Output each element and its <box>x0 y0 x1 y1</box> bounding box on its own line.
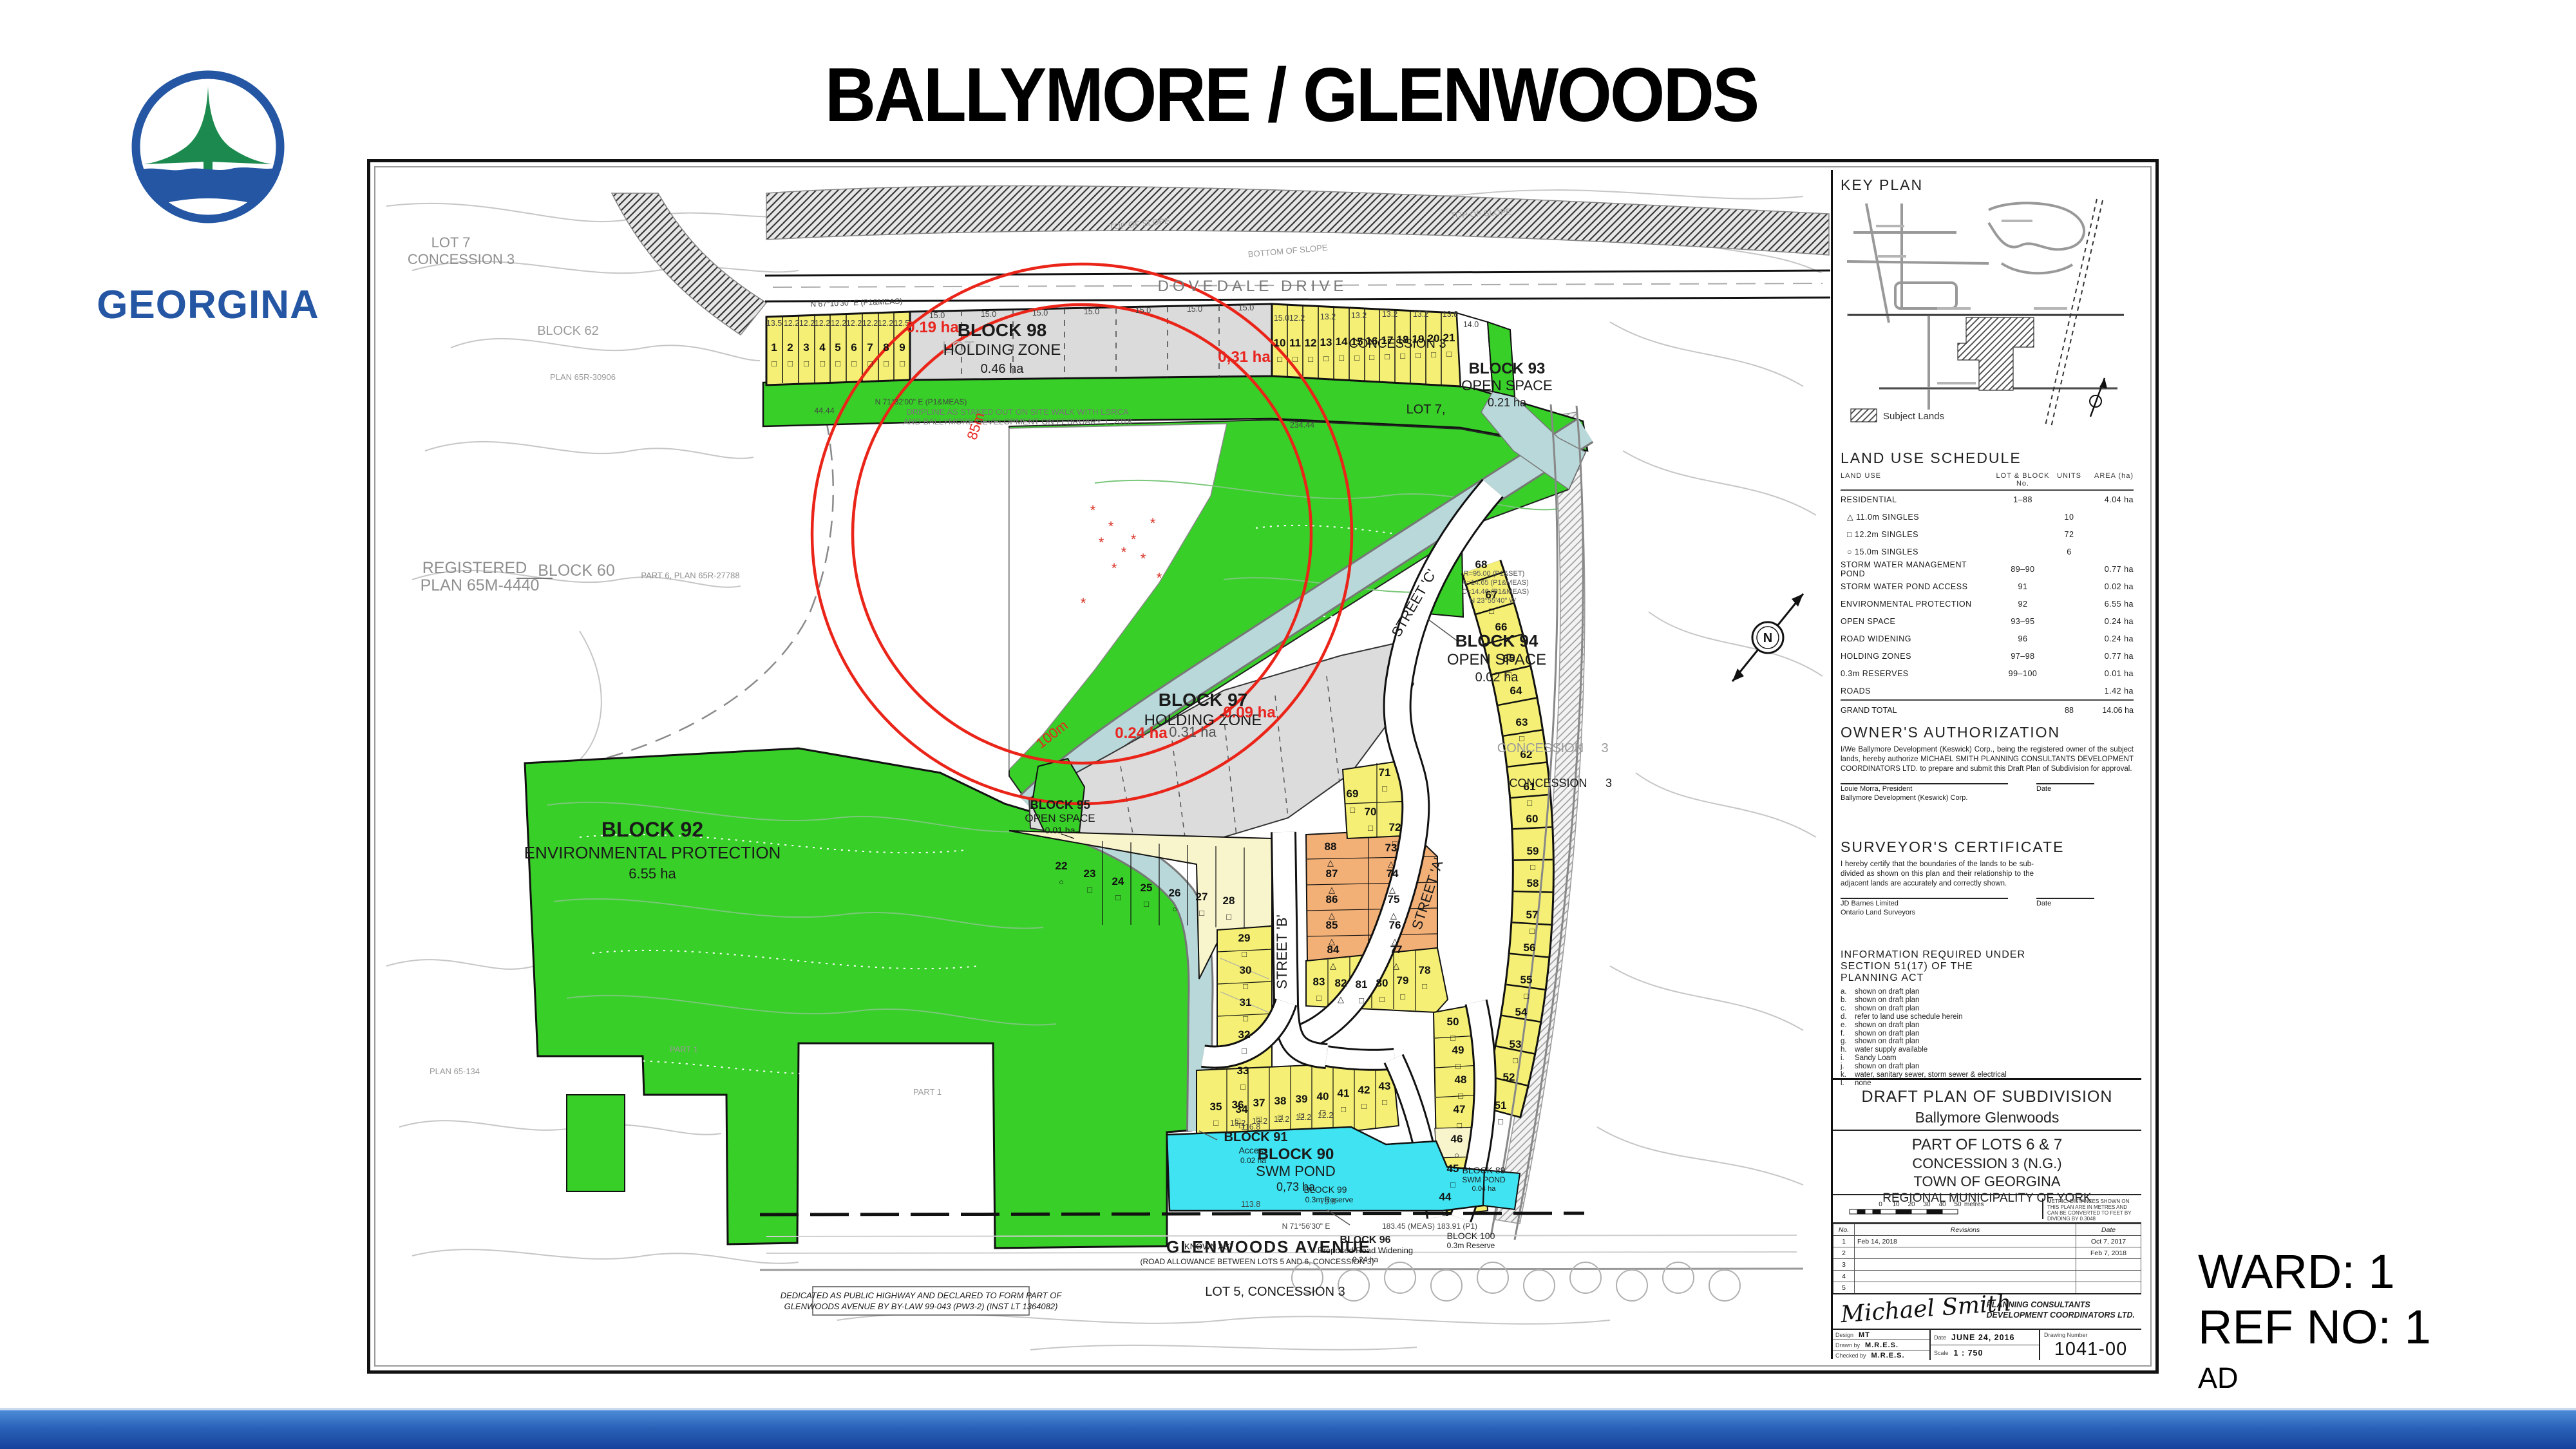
lot-type-marker: □ <box>884 359 889 368</box>
surveyors-signature-row: JD Barnes Limited Ontario Land Surveyors… <box>1841 898 2134 917</box>
lot-number: 80 <box>1376 977 1388 989</box>
lot-type-marker: ○ <box>1172 904 1177 914</box>
lot-type-marker: □ <box>1450 1180 1455 1189</box>
lot-number: 3 <box>803 341 809 354</box>
lot-type-marker: □ <box>1416 350 1421 360</box>
dimension-label: 12.2 <box>878 319 893 328</box>
map-label: 0.04 ha <box>1472 1185 1497 1193</box>
map-label: 0.31 ha <box>1169 724 1217 740</box>
lot-type-marker: □ <box>1422 981 1427 991</box>
map-label: N 71°32'00" E (P1&MEAS) <box>875 397 967 406</box>
svg-text:0: 0 <box>1879 1201 1882 1208</box>
drawing-number: 1041-00 <box>2040 1339 2141 1360</box>
land-use-row: ○ 15.0m SINGLES6 <box>1841 543 2134 560</box>
map-label: 0.09 ha <box>1223 704 1276 721</box>
lot-number: 50 <box>1447 1016 1459 1028</box>
lot-number: 29 <box>1238 932 1251 944</box>
owners-signature-row: Louie Morra, President Ballymore Develop… <box>1841 783 2134 802</box>
dimension-label: 12.2 <box>815 319 830 328</box>
lot-type-marker: □ <box>851 359 857 368</box>
lot-type-marker: □ <box>835 359 840 368</box>
lot-number: 70 <box>1365 806 1377 818</box>
slide: { "page": {"title": "BALLYMORE / GLENWOO… <box>0 0 2576 1449</box>
map-label: HOLDING ZONE <box>943 341 1061 359</box>
svg-text:50: 50 <box>1954 1201 1962 1208</box>
lot-type-marker: □ <box>788 359 793 368</box>
svg-text:20: 20 <box>1908 1201 1915 1208</box>
lot-type-marker: □ <box>1498 1117 1503 1126</box>
lot-number: 56 <box>1524 942 1536 954</box>
lot-type-marker: △ <box>1329 885 1335 895</box>
owners-authorization-section: OWNER'S AUTHORIZATION I/We Ballymore Dev… <box>1833 717 2141 832</box>
firm-name: PLANNING CONSULTANTS DEVELOPMENT COORDIN… <box>1986 1300 2135 1320</box>
land-use-row: 0.3m RESERVES99–1000.01 ha <box>1841 665 2134 682</box>
lot-type-marker: □ <box>1524 991 1529 1001</box>
map-label: PLAN 65M-4440 <box>421 576 540 594</box>
map-label: PART 6, PLAN 65R-27788 <box>641 571 739 580</box>
lot-number: 71 <box>1379 766 1391 779</box>
svg-text:40: 40 <box>1938 1201 1946 1208</box>
map-label: DEDICATED AS PUBLIC HIGHWAY AND DECLARED… <box>781 1291 1063 1300</box>
lot-number: 10 <box>1274 337 1286 349</box>
surveyors-title: SURVEYOR'S CERTIFICATE <box>1841 838 2134 856</box>
lot-number: 48 <box>1455 1074 1467 1086</box>
map-label: 0.3m Reserve <box>1305 1195 1354 1204</box>
lot-number: 64 <box>1510 685 1522 697</box>
dimension-label: 13.8 <box>1443 310 1458 319</box>
map-label: N 71°56'30" E <box>1282 1222 1331 1231</box>
lot-number: 1 <box>771 341 777 354</box>
lot-number: 60 <box>1526 813 1539 825</box>
lot-type-marker: □ <box>1235 1116 1240 1126</box>
svg-text:N: N <box>1763 631 1772 645</box>
lot-type-marker: □ <box>1359 996 1364 1005</box>
lot-type-marker: □ <box>1458 1091 1463 1101</box>
land-use-title: LAND USE SCHEDULE <box>1841 450 2134 467</box>
key-plan-section: KEY PLAN <box>1833 170 2141 443</box>
lot-number: 43 <box>1379 1080 1391 1092</box>
dimension-label: 13.2 <box>1351 311 1367 320</box>
map-label: BLOCK 62 <box>537 324 599 338</box>
block92-fragment <box>567 1095 625 1191</box>
lot-number: 11 <box>1289 337 1301 349</box>
map-label: LOT 7, <box>1406 402 1446 417</box>
lot-type-marker: ○ <box>1059 877 1064 887</box>
footer-annotations: WARD: 1 REF NO: 1 AD <box>2198 1244 2559 1395</box>
lot-type-marker: △ <box>1329 936 1335 946</box>
map-label: SWM POND <box>1256 1163 1335 1179</box>
lot-number: 14 <box>1336 336 1348 348</box>
map-label: PART 1 <box>670 1045 698 1054</box>
key-plan-map: Subject Lands <box>1841 194 2134 433</box>
lot-number: 59 <box>1527 845 1539 857</box>
map-label: ENVIRONMENTAL PROTECTION <box>524 843 781 862</box>
land-use-row: STORM WATER POND ACCESS910.02 ha <box>1841 578 2134 595</box>
svg-text:*: * <box>1081 595 1086 611</box>
surveyors-sig-company: Ontario Land Surveyors <box>1841 909 1915 916</box>
lot-number: 83 <box>1313 976 1325 988</box>
north-arrow-icon: N <box>1732 594 1803 681</box>
lot-number: 81 <box>1356 978 1368 990</box>
lot-type-marker: □ <box>1243 1014 1248 1023</box>
owners-date-label: Date <box>2036 783 2094 802</box>
map-label: OPEN SPACE <box>1447 651 1546 668</box>
lot-number: 26 <box>1169 887 1181 899</box>
owners-title: OWNER'S AUTHORIZATION <box>1841 724 2134 741</box>
lot-number: 27 <box>1196 891 1208 903</box>
footer-blue-bar <box>0 1408 2576 1449</box>
lot-number: 42 <box>1358 1084 1370 1096</box>
map-label: AND BALLYMORE DEVELOPMENT ON FEBRUARY 1,… <box>903 417 1132 426</box>
map-label: OPEN SPACE <box>1461 377 1552 393</box>
lot-number: 35 <box>1210 1101 1222 1113</box>
lot-type-marker: △ <box>1330 961 1336 971</box>
lot-type-marker: □ <box>1400 351 1405 361</box>
key-plan-north-icon <box>2090 378 2107 417</box>
map-label: BLOCK 94 <box>1455 631 1539 650</box>
dimension-label: 12.2 <box>862 319 878 328</box>
lot-number: 58 <box>1527 877 1539 889</box>
lot-type-marker: □ <box>1350 805 1355 815</box>
map-label: PLAN 65-134 <box>430 1066 480 1076</box>
map-label: 0.21 ha <box>1488 396 1527 409</box>
map-label: STREET 'B' <box>1274 914 1290 989</box>
dimension-label: 15.0 <box>1084 307 1099 316</box>
owners-body: I/We Ballymore Development (Keswick) Cor… <box>1841 745 2134 774</box>
map-label: LOT 7 <box>431 234 471 251</box>
lot-type-marker: □ <box>1446 349 1452 359</box>
svg-text:*: * <box>1112 560 1117 576</box>
lot-number: 86 <box>1326 893 1338 905</box>
map-label: 0.02 ha <box>1475 670 1519 685</box>
lot-number: 28 <box>1223 895 1235 907</box>
lot-number: 41 <box>1338 1087 1350 1099</box>
lot-type-marker: □ <box>1226 912 1231 922</box>
lot-type-marker: □ <box>820 359 825 368</box>
subdivision-map: *** *** **** <box>378 170 1831 1359</box>
metric-note: METRIC: DISTANCES SHOWN ON THIS PLAN ARE… <box>2042 1198 2137 1219</box>
plan-location-row: PART OF LOTS 6 & 7 CONCESSION 3 (N.G.) T… <box>1833 1130 2141 1194</box>
map-label: 3 <box>1601 741 1608 755</box>
key-plan-title: KEY PLAN <box>1841 176 2134 194</box>
lot-number: 77 <box>1390 943 1403 956</box>
lot-number: 5 <box>835 341 840 354</box>
svg-text:*: * <box>1141 551 1146 567</box>
land-use-rows: RESIDENTIAL1–884.04 ha△ 11.0m SINGLES10□… <box>1841 491 2134 699</box>
info-item: f.shown on draft plan <box>1841 1030 2134 1038</box>
drawing-number-field: Drawing Number 1041-00 <box>2040 1330 2141 1360</box>
map-label: BLOCK 96 <box>1340 1235 1390 1245</box>
map-label: BLOCK 92 <box>601 818 703 841</box>
lot-type-marker: □ <box>1339 353 1344 363</box>
lot-number: 30 <box>1240 964 1252 976</box>
subject-lands-swatch <box>1851 409 1877 422</box>
lot-number: 6 <box>851 341 857 354</box>
lot-type-marker: □ <box>1385 352 1390 361</box>
initials-label: AD <box>2198 1361 2559 1395</box>
lot-type-marker: □ <box>1115 893 1121 902</box>
lot-type-marker: □ <box>1513 1056 1518 1065</box>
map-label: CONCESSION 3 <box>1349 337 1446 351</box>
surveyors-body: I hereby certify that the boundaries of … <box>1841 860 2034 889</box>
lot-number: 63 <box>1516 716 1528 728</box>
lot-number: 73 <box>1385 842 1397 854</box>
dimension-label: 15.0 <box>1187 305 1202 314</box>
land-use-row: RESIDENTIAL1–884.04 ha <box>1841 491 2134 508</box>
lot-number: 38 <box>1274 1095 1287 1107</box>
lot-number: 25 <box>1141 882 1153 894</box>
lot-type-marker: □ <box>772 359 777 368</box>
map-label: 0,31 ha <box>1218 348 1271 366</box>
map-label: CONCESSION <box>1509 777 1587 790</box>
dimension-label: 44.44 <box>814 406 834 415</box>
lot-number: 31 <box>1240 996 1252 1009</box>
svg-text:*: * <box>1157 570 1162 586</box>
lot-type-marker: △ <box>1327 858 1334 867</box>
dimension-label: 12.2 <box>831 319 846 328</box>
dimension-label: 13.2 <box>1382 310 1397 319</box>
lot-number: 12 <box>1305 337 1317 349</box>
dimension-label: 15.0 <box>1274 314 1289 323</box>
svg-text:*: * <box>1131 531 1137 547</box>
dimension-label: 15.0 <box>1238 303 1254 312</box>
lot-number: 45 <box>1447 1162 1459 1175</box>
lot-type-marker: □ <box>1354 353 1359 363</box>
map-label: 0.24 ha <box>1115 724 1168 742</box>
lot-number: 7 <box>867 341 873 354</box>
lot-type-marker: □ <box>1369 352 1374 362</box>
georgina-logo: GEORGINA <box>97 43 319 300</box>
lot-number: 55 <box>1520 974 1533 986</box>
land-use-row: ENVIRONMENTAL PROTECTION926.55 ha <box>1841 595 2134 612</box>
lot-type-marker: □ <box>1379 994 1385 1004</box>
lot-type-marker: □ <box>804 359 809 368</box>
location-line: PART OF LOTS 6 & 7 <box>1833 1136 2141 1154</box>
lot-number: 23 <box>1084 867 1096 880</box>
ward-label: WARD: 1 <box>2198 1244 2559 1300</box>
map-label: LOT 5, CONCESSION 3 <box>1205 1285 1345 1299</box>
lot-type-marker: □ <box>1382 1097 1387 1107</box>
lot-number: 47 <box>1454 1103 1466 1115</box>
info-item: d.refer to land use schedule herein <box>1841 1013 2134 1021</box>
lot-type-marker: □ <box>1199 908 1204 918</box>
info-item: a.shown on draft plan <box>1841 988 2134 996</box>
map-label: 0.3m Reserve <box>1447 1241 1495 1250</box>
lot-type-marker: □ <box>1316 993 1321 1003</box>
map-label: BLOCK 91 <box>1224 1130 1288 1144</box>
lot-number: 4 <box>819 341 826 354</box>
lot-number: 39 <box>1296 1093 1308 1105</box>
dimension-label: 13.2 <box>1320 312 1336 321</box>
map-label: 6.55 ha <box>629 866 676 882</box>
lot-type-marker: □ <box>1323 354 1329 363</box>
lot-number: 57 <box>1526 909 1539 921</box>
lot-type-marker: □ <box>1529 926 1535 936</box>
map-label: BLOCK 90 <box>1258 1146 1334 1163</box>
lot-number: 22 <box>1056 860 1068 872</box>
svg-text:metres: metres <box>1964 1201 1984 1208</box>
map-label: BLOCK 98 <box>958 320 1046 340</box>
subject-lands-label: Subject Lands <box>1883 411 1944 422</box>
land-use-row: △ 11.0m SINGLES10 <box>1841 508 2134 526</box>
map-label: BLOCK 95 <box>1030 799 1090 812</box>
lot-type-marker: □ <box>1368 823 1373 833</box>
lot-number: 51 <box>1495 1099 1507 1112</box>
map-label: 0.24 ha <box>1352 1255 1378 1264</box>
dimension-label: 113.8 <box>1241 1200 1260 1209</box>
info-required-title: INFORMATION REQUIRED UNDER SECTION 51(17… <box>1841 949 2134 984</box>
lot-number: 32 <box>1238 1028 1251 1041</box>
lot-number: 9 <box>899 341 905 354</box>
lot-number: 72 <box>1389 821 1401 833</box>
lot-number: 33 <box>1237 1065 1249 1077</box>
info-item: j.shown on draft plan <box>1841 1063 2134 1071</box>
map-label: (ROAD ALLOWANCE BETWEEN LOTS 5 AND 6, CO… <box>1141 1257 1374 1266</box>
lot-type-marker: ○ <box>1454 1150 1459 1160</box>
lot-number: 85 <box>1326 919 1338 931</box>
lot-number: 74 <box>1387 867 1399 880</box>
land-use-row: ROAD WIDENING960.24 ha <box>1841 630 2134 647</box>
land-use-row: OPEN SPACE93–950.24 ha <box>1841 612 2134 630</box>
lot-number: 75 <box>1388 893 1400 905</box>
land-use-schedule-section: LAND USE SCHEDULE LAND USELOT & BLOCK No… <box>1833 443 2141 717</box>
svg-text:*: * <box>1121 544 1127 560</box>
lot-type-marker: □ <box>1242 949 1247 959</box>
map-label: BLOCK 99 <box>1304 1184 1347 1195</box>
lot-type-marker: □ <box>1243 981 1248 991</box>
lot-type-marker: □ <box>1277 354 1282 364</box>
lot-type-marker: □ <box>1320 1108 1325 1117</box>
revisions-table: No.RevisionsDate1Feb 14, 2018Oct 7, 2017… <box>1833 1224 2141 1294</box>
lot-type-marker: △ <box>1393 961 1399 971</box>
lot-type-marker: □ <box>1278 1112 1283 1122</box>
lot-number: 24 <box>1112 875 1124 887</box>
lot-type-marker: □ <box>1341 1104 1346 1114</box>
lot-type-marker: □ <box>1450 1033 1455 1043</box>
dimension-label: 15.0 <box>1135 306 1151 315</box>
map-label: CONCESSION <box>1497 741 1584 755</box>
map-label: PLAN 65R-30906 <box>550 372 616 382</box>
lot-number: 36 <box>1232 1099 1244 1111</box>
plan-type: DRAFT PLAN OF SUBDIVISION <box>1833 1088 2141 1106</box>
svg-text:*: * <box>1108 518 1114 535</box>
land-use-row: ROADS1.42 ha <box>1841 682 2134 699</box>
lot-number: 46 <box>1451 1133 1463 1145</box>
svg-text:30: 30 <box>1923 1201 1931 1208</box>
lot-type-marker: □ <box>1527 798 1532 808</box>
lot-type-marker: □ <box>867 359 873 368</box>
lot-type-marker: □ <box>900 359 905 368</box>
land-use-headers: LAND USELOT & BLOCK No.UNITSAREA (ha) <box>1841 472 2134 491</box>
map-label: R=95.00 (P1&SET) <box>1464 570 1524 578</box>
location-line: CONCESSION 3 (N.G.) <box>1833 1155 2141 1172</box>
lot-type-marker: □ <box>1299 1110 1304 1120</box>
info-required-items: a.shown on draft planb.shown on draft pl… <box>1841 988 2134 1088</box>
dimension-label: 12.2 <box>1289 314 1305 323</box>
lot-number: 8 <box>883 341 889 354</box>
info-item: b.shown on draft plan <box>1841 996 2134 1005</box>
lot-type-marker: □ <box>1443 1208 1448 1218</box>
lot-type-marker: □ <box>1361 1101 1367 1111</box>
info-item: c.shown on draft plan <box>1841 1005 2134 1013</box>
dimension-label: 15.0 <box>1032 308 1048 317</box>
lot-number: 37 <box>1253 1097 1265 1109</box>
info-required-section: INFORMATION REQUIRED UNDER SECTION 51(17… <box>1833 943 2141 1078</box>
map-label: CONCESSION 3 <box>408 251 515 267</box>
lot-number: 76 <box>1389 919 1401 931</box>
lot-number: 87 <box>1326 867 1338 880</box>
revisions-row: No.RevisionsDate1Feb 14, 2018Oct 7, 2017… <box>1833 1222 2141 1293</box>
map-label: 3 <box>1605 777 1612 790</box>
map-label: BLOCK 93 <box>1469 360 1546 377</box>
lot-number: 40 <box>1317 1090 1329 1103</box>
dimension-label: 12.2 <box>846 319 862 328</box>
map-label: 0.46 ha <box>981 362 1025 376</box>
lot-type-marker: □ <box>1242 1046 1247 1056</box>
lot-type-marker: □ <box>1382 784 1387 793</box>
lot-type-marker: □ <box>1400 992 1405 1001</box>
map-label: 0.01 ha <box>1045 825 1075 835</box>
map-label: 183.45 (MEAS) 183.91 (P1) <box>1382 1222 1477 1231</box>
lot-number: 52 <box>1503 1071 1515 1083</box>
georgina-logo-icon <box>127 66 289 228</box>
info-item: i.Sandy Loam <box>1841 1054 2134 1063</box>
map-label: BLOCK 89 <box>1463 1165 1506 1175</box>
dimension-label: 14.0 <box>1463 320 1479 329</box>
map-label: OPEN SPACE <box>1025 812 1095 824</box>
dimension-label: 234.44 <box>1290 421 1314 430</box>
map-label: DOVEDALE DRIVE <box>1158 278 1348 295</box>
lot-number: 54 <box>1515 1006 1528 1018</box>
info-item: h.water supply available <box>1841 1046 2134 1054</box>
lot-type-marker: □ <box>1431 350 1436 359</box>
map-label: BLOCK 60 <box>538 562 615 580</box>
lot-number: 69 <box>1347 788 1359 800</box>
map-label: DRIPLINE AS STAKED OUT ON SITE WALK WITH… <box>906 407 1128 417</box>
title-block-panel: KEY PLAN <box>1831 170 2141 1359</box>
lot-number: 79 <box>1397 974 1409 987</box>
scale-bar: 01020304050metres <box>1838 1198 2031 1221</box>
map-label: Proposed Road Widening <box>1318 1245 1413 1255</box>
plan-title-row: DRAFT PLAN OF SUBDIVISION Ballymore Glen… <box>1833 1078 2141 1130</box>
dimension-label: 13.2 <box>1413 310 1428 319</box>
land-use-row: STORM WATER MANAGEMENT POND89–900.77 ha <box>1841 560 2134 578</box>
svg-text:*: * <box>1099 535 1104 551</box>
map-label: PART 1 <box>913 1087 942 1097</box>
map-label: A=14.65 (P1&MEAS) <box>1462 579 1529 587</box>
map-label: N 23°55'40" W <box>1470 597 1516 605</box>
svg-text:*: * <box>1090 502 1096 518</box>
plan-name: Ballymore Glenwoods <box>1833 1109 2141 1126</box>
page-title: BALLYMORE / GLENWOODS <box>773 51 1810 139</box>
land-use-row: □ 12.2m SINGLES72 <box>1841 526 2134 543</box>
location-line: TOWN OF GEORGINA <box>1833 1173 2141 1190</box>
firm-row: Michael Smith PLANNING CONSULTANTS DEVEL… <box>1833 1293 2141 1329</box>
info-item: e.shown on draft plan <box>1841 1021 2134 1030</box>
ref-no-label: REF NO: 1 <box>2198 1300 2559 1355</box>
map-label: GLENWOODS AVENUE BY BY-LAW 99-043 (PW3-2… <box>784 1302 1058 1311</box>
lot-number: 82 <box>1335 977 1347 989</box>
map-label: REGISTERED <box>422 559 527 577</box>
draft-plan-sheet: *** *** **** <box>367 159 2159 1374</box>
fields-row: DesignMT Drawn byM.R.E.S. Checked byM.R.… <box>1833 1329 2141 1360</box>
lot-number: 68 <box>1475 558 1488 571</box>
owners-sig-company: Ballymore Development (Keswick) Corp. <box>1841 794 1967 802</box>
dimension-label: 12.2 <box>784 319 799 328</box>
lot-number: 2 <box>787 341 793 354</box>
dimension-label: 13.5 <box>766 319 782 328</box>
lot-number: 13 <box>1320 336 1332 348</box>
